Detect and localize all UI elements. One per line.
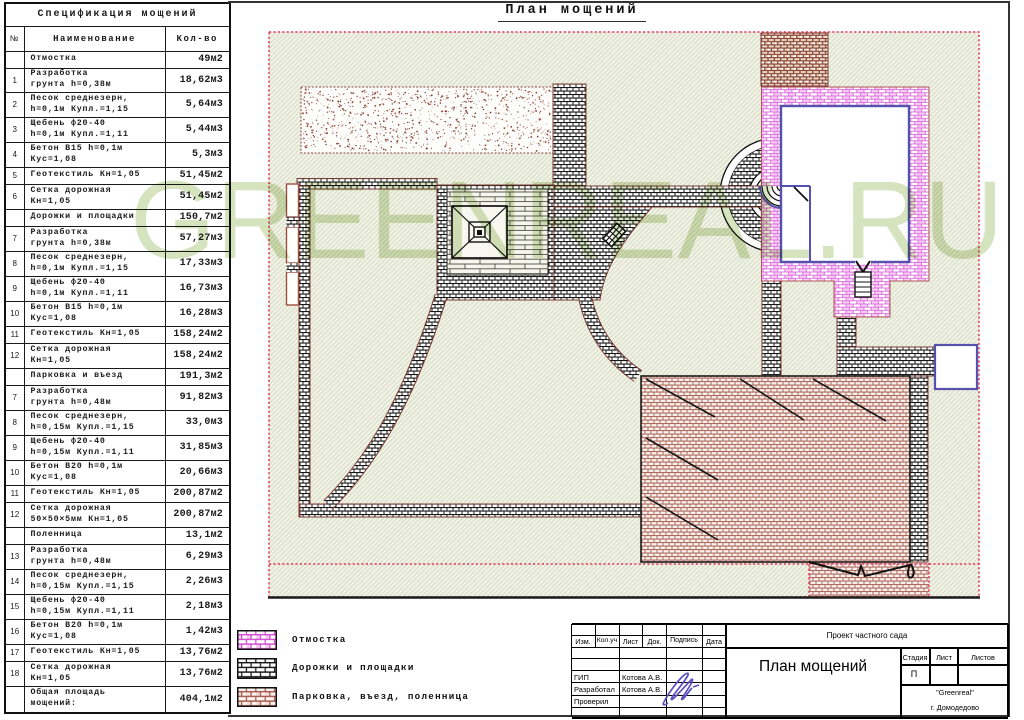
svg-text:GREENREAL.RU: GREENREAL.RU bbox=[130, 159, 1004, 282]
